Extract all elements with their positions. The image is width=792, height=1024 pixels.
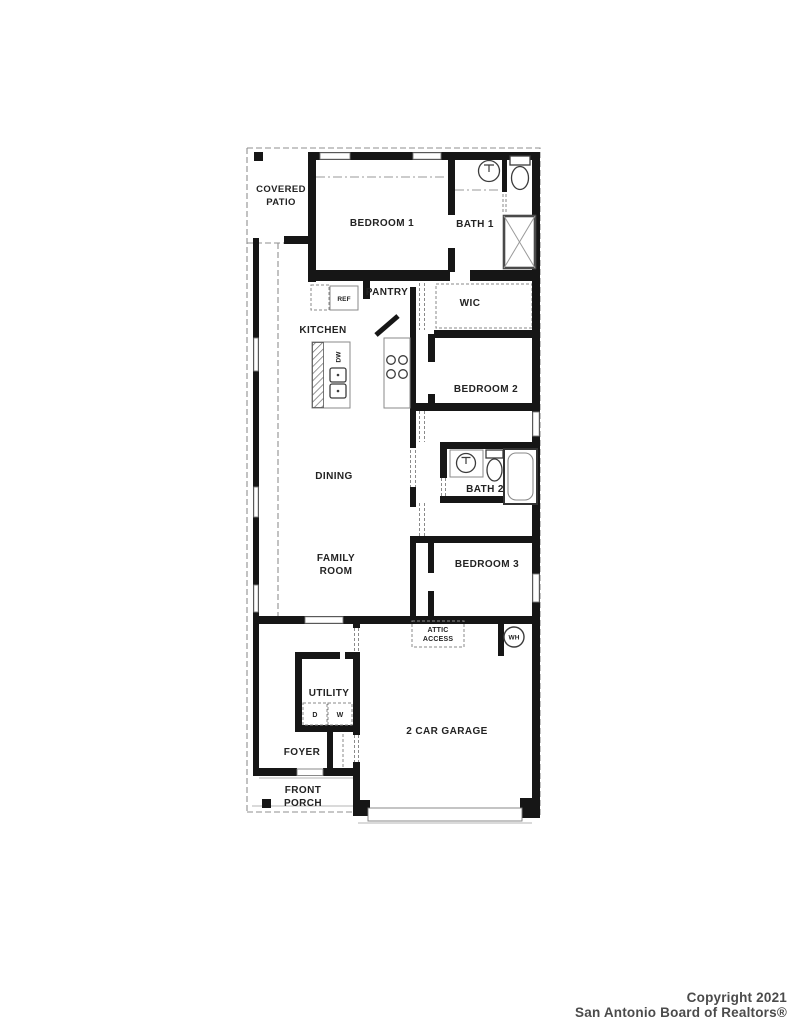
toilet-icon: [510, 156, 530, 190]
room-label-wic: WIC: [460, 298, 481, 309]
window: [533, 412, 539, 436]
room-label-covered-patio-line2: PATIO: [266, 197, 296, 208]
fixture-label-dishwasher: DW: [336, 351, 343, 363]
room-label-front-porch-line2: PORCH: [284, 798, 322, 809]
fixture-label-dryer: D: [312, 712, 317, 719]
sink-icon: [479, 161, 500, 182]
shower-icon: [504, 216, 535, 268]
window: [533, 574, 539, 602]
property-outline: [247, 148, 540, 815]
room-label-bedroom-2: BEDROOM 2: [454, 384, 518, 395]
toilet-icon: [486, 450, 503, 481]
kitchen-island: [312, 342, 350, 408]
room-label-bedroom-1: BEDROOM 1: [350, 218, 414, 229]
cooktop-icon: [384, 338, 410, 408]
window: [254, 338, 258, 371]
room-label-pantry: PANTRY: [366, 287, 408, 298]
room-label-family-room-line1: FAMILY: [317, 553, 355, 564]
watermark-line1: Copyright 2021: [687, 990, 788, 1005]
room-label-dining: DINING: [315, 471, 352, 482]
fixture-label-water-heater: WH: [508, 635, 519, 642]
floor-plan-page: COVERED PATIO BEDROOM 1 BATH 1 PANTRY RE…: [0, 0, 792, 1024]
window: [305, 617, 343, 623]
garage-door-opening-1: [352, 628, 361, 652]
room-label-bath-1: BATH 1: [456, 219, 494, 230]
kitchen-corner-wall: [376, 316, 398, 335]
room-label-kitchen: KITCHEN: [299, 325, 346, 336]
watermark-line2: San Antonio Board of Realtors®: [575, 1005, 787, 1020]
front-door: [297, 769, 323, 776]
wic-shelf-outline: [436, 284, 532, 328]
fixture-label-attic-access-line2: ACCESS: [423, 636, 454, 643]
window: [320, 153, 350, 159]
room-label-foyer: FOYER: [284, 747, 321, 758]
room-label-utility: UTILITY: [309, 688, 350, 699]
bathtub-icon: [504, 449, 537, 504]
fixture-label-attic-access-line1: ATTIC: [427, 627, 448, 634]
room-label-bedroom-3: BEDROOM 3: [455, 559, 519, 570]
window: [254, 487, 258, 517]
room-label-covered-patio-line1: COVERED: [256, 184, 306, 195]
window: [254, 585, 258, 612]
floor-plan-drawing: COVERED PATIO BEDROOM 1 BATH 1 PANTRY RE…: [0, 0, 792, 1024]
room-label-front-porch-line1: FRONT: [285, 785, 321, 796]
ceiling-line-bedroom1: [316, 177, 500, 190]
attic-access-box: [412, 621, 464, 647]
room-label-family-room-line2: ROOM: [320, 566, 353, 577]
refrigerator-box: [311, 285, 358, 310]
room-label-garage: 2 CAR GARAGE: [406, 726, 487, 737]
window: [413, 153, 441, 159]
fixture-label-refrigerator: REF: [337, 296, 350, 303]
sink-icon: [450, 450, 483, 477]
fixture-label-washer: W: [337, 712, 344, 719]
room-label-bath-2: BATH 2: [466, 484, 504, 495]
garage-door-opening-2: [352, 735, 361, 762]
garage-door: [368, 808, 522, 821]
